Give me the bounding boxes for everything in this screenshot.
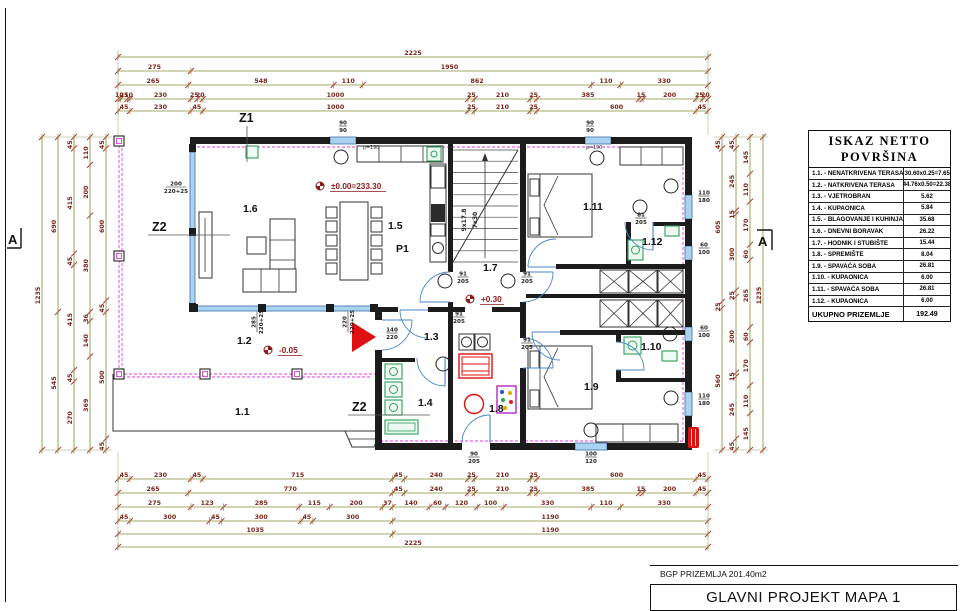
svg-text:100: 100 bbox=[698, 333, 710, 339]
svg-text:180: 180 bbox=[698, 401, 710, 407]
svg-text:200: 200 bbox=[170, 182, 182, 188]
dim-label: 210 bbox=[496, 92, 510, 99]
room-label: 1.10 bbox=[641, 341, 662, 353]
dim-label: 265 bbox=[743, 289, 750, 302]
dim-label: 15 bbox=[637, 486, 646, 493]
table-row: 1.11. - SPAVAĆA SOBA26.81 bbox=[809, 284, 950, 296]
table-row: 1.12. - KUPAONICA6.00 bbox=[809, 296, 950, 308]
room-area-cell: 26.81 bbox=[903, 261, 950, 272]
dim-label: 25 bbox=[529, 486, 538, 493]
svg-text:90: 90 bbox=[586, 121, 594, 127]
area-table-title: ISKAZ NETTO POVRŠINA bbox=[809, 131, 950, 168]
svg-text:205: 205 bbox=[521, 345, 533, 351]
dim-label: 690 bbox=[51, 219, 58, 233]
dim-label: 605 bbox=[715, 220, 722, 233]
opening-size-label: 110180 bbox=[698, 394, 710, 408]
dim-label: 200 bbox=[663, 486, 677, 493]
room-name-cell: 1.3. - VJETROBRAN bbox=[809, 193, 903, 200]
area-table-rows: 1.1. - NENATKRIVENA TERASA30.60x0.25=7.6… bbox=[809, 168, 950, 307]
dim-label: 230 bbox=[154, 472, 168, 479]
dim-label: 10 bbox=[124, 92, 133, 99]
room-area-cell: 5.62 bbox=[903, 191, 950, 202]
dim-label: 1950 bbox=[441, 64, 459, 71]
room-area-cell: 26.22 bbox=[903, 226, 950, 237]
stair-note: 9x17.8 bbox=[461, 209, 468, 232]
dim-label: 300 bbox=[346, 514, 360, 521]
dim-label: 36 bbox=[83, 313, 90, 322]
dim-label: 1190 bbox=[541, 527, 559, 534]
dim-label: 110 bbox=[743, 394, 750, 408]
dim-label: 300 bbox=[163, 514, 177, 521]
table-row: 1.5. - BLAGOVANJE I KUHINJA35.68 bbox=[809, 215, 950, 227]
room-area-cell: 30.60x0.25=7.65 bbox=[903, 168, 950, 179]
dim-label: 45 bbox=[67, 257, 74, 266]
dim-label: 1235 bbox=[35, 287, 42, 305]
svg-text:91: 91 bbox=[459, 272, 467, 278]
dim-label: 1000 bbox=[327, 104, 345, 111]
room-area-cell: 6.00 bbox=[903, 273, 950, 284]
room-name-cell: 1.5. - BLAGOVANJE I KUHINJA bbox=[809, 216, 903, 223]
opening-size-label: 9090 bbox=[339, 121, 347, 135]
room-name-cell: 1.7. - HODNIK I STUBIŠTE bbox=[809, 240, 903, 247]
dim-label: 120 bbox=[455, 500, 469, 507]
svg-text:91: 91 bbox=[523, 338, 531, 344]
level-marker-label: -0.05 bbox=[279, 346, 298, 355]
stair-note: 7x30 bbox=[472, 212, 479, 228]
dim-label: 275 bbox=[148, 64, 161, 71]
room-name-cell: 1.1. - NENATKRIVENA TERASA bbox=[809, 170, 903, 177]
dim-label: 170 bbox=[743, 218, 750, 232]
room-name-cell: 1.8. - SPREMIŠTE bbox=[809, 251, 903, 258]
dim-label: 140 bbox=[83, 334, 90, 348]
opening-size-label: 100120 bbox=[585, 452, 597, 466]
staircase: 9x17.87x30 bbox=[453, 150, 518, 262]
room-name-cell: 1.2. - NATKRIVENA TERASA bbox=[809, 182, 903, 189]
dim-label: 1190 bbox=[541, 514, 559, 521]
dim-label: 60 bbox=[743, 332, 750, 341]
dim-label: 770 bbox=[284, 486, 298, 493]
svg-text:140: 140 bbox=[386, 328, 398, 334]
room-label: 1.1 bbox=[235, 406, 250, 418]
svg-text:180: 180 bbox=[698, 198, 710, 204]
opening-size-label: 91205 bbox=[521, 272, 533, 286]
svg-text:285: 285 bbox=[252, 316, 258, 328]
opening-size-label: 285220+25 bbox=[252, 310, 266, 334]
svg-text:205: 205 bbox=[468, 459, 480, 465]
table-row: 1.3. - VJETROBRAN5.62 bbox=[809, 191, 950, 203]
dim-label: 145 bbox=[743, 427, 750, 440]
dim-label: 385 bbox=[581, 486, 594, 493]
table-row: 1.10. - KUPAONICA6.00 bbox=[809, 273, 950, 285]
room-area-cell: 44.76x0.50=22.38 bbox=[903, 180, 950, 191]
room-label: 1.11 bbox=[583, 201, 603, 213]
dim-label: 123 bbox=[201, 500, 214, 507]
dim-label: 862 bbox=[470, 78, 483, 85]
svg-text:220+25: 220+25 bbox=[164, 189, 188, 195]
dim-label: 110 bbox=[743, 183, 750, 197]
dim-label: 25 bbox=[529, 472, 538, 479]
dim-label: 230 bbox=[154, 92, 168, 99]
dim-label: 25 bbox=[729, 291, 736, 300]
dim-label: 45 bbox=[193, 472, 202, 479]
table-row: 1.8. - SPREMIŠTE8.04 bbox=[809, 249, 950, 261]
dim-label: 45 bbox=[67, 140, 74, 149]
dim-label: 548 bbox=[254, 78, 267, 85]
dim-label: 265 bbox=[147, 78, 160, 85]
svg-text:81: 81 bbox=[637, 213, 645, 219]
svg-text:91: 91 bbox=[455, 312, 463, 318]
dim-label: 45 bbox=[67, 373, 74, 382]
dim-label: 200 bbox=[663, 92, 677, 99]
dim-label: 45 bbox=[729, 442, 736, 451]
dim-label: 500 bbox=[99, 370, 106, 384]
dim-label: 45 bbox=[211, 514, 220, 521]
room-label: 1.8 bbox=[489, 403, 504, 415]
area-table: ISKAZ NETTO POVRŠINA 1.1. - NENATKRIVENA… bbox=[808, 130, 951, 322]
svg-text:91: 91 bbox=[523, 272, 531, 278]
dim-label: 245 bbox=[729, 175, 736, 188]
room-label: 1.2 bbox=[237, 335, 252, 347]
dim-label: 45 bbox=[715, 140, 722, 149]
area-table-title-line1: ISKAZ NETTO bbox=[809, 134, 950, 150]
svg-text:205: 205 bbox=[453, 319, 465, 325]
dim-label: 110 bbox=[83, 146, 90, 160]
title-block-divider bbox=[650, 565, 958, 566]
table-row: 1.2. - NATKRIVENA TERASA44.76x0.50=22.38 bbox=[809, 180, 950, 192]
dim-label: 45 bbox=[698, 104, 707, 111]
room-area-cell: 15.44 bbox=[903, 238, 950, 249]
opening-size-label: 91205 bbox=[521, 338, 533, 352]
room-label: 1.4 bbox=[418, 397, 433, 409]
room-area-cell: 5.84 bbox=[903, 203, 950, 214]
room-label: 1.5 bbox=[388, 220, 403, 232]
dim-label: 25 bbox=[467, 486, 476, 493]
room-name-cell: 1.9. - SPAVAĆA SOBA bbox=[809, 263, 903, 270]
dim-label: 45 bbox=[698, 486, 707, 493]
dim-label: 15 bbox=[637, 92, 646, 99]
dim-label: 110 bbox=[599, 78, 613, 85]
dim-label: 45 bbox=[193, 104, 202, 111]
room-label: P1 bbox=[396, 243, 409, 255]
dim-label: 15 bbox=[729, 372, 736, 381]
svg-text:90: 90 bbox=[470, 452, 478, 458]
dim-label: 25 bbox=[467, 472, 476, 479]
dim-label: 369 bbox=[83, 399, 90, 412]
dim-label: 45 bbox=[99, 442, 106, 451]
dim-label: 25 bbox=[467, 104, 476, 111]
dim-label: 245 bbox=[729, 403, 736, 416]
bgp-area-label: BGP PRIZEMLJA 201.40m2 bbox=[660, 569, 767, 579]
dim-label: 115 bbox=[308, 500, 321, 507]
dim-label: 415 bbox=[67, 313, 74, 326]
dim-label: 1235 bbox=[756, 287, 763, 305]
table-row: 1.7. - HODNIK I STUBIŠTE15.44 bbox=[809, 238, 950, 250]
dim-label: 25 bbox=[467, 92, 476, 99]
dim-label: 170 bbox=[743, 359, 750, 373]
table-row: 1.1. - NENATKRIVENA TERASA30.60x0.25=7.6… bbox=[809, 168, 950, 180]
dim-label: 2225 bbox=[404, 540, 422, 547]
dim-label: 110 bbox=[599, 500, 613, 507]
dim-label: 45 bbox=[120, 104, 129, 111]
dim-label: 210 bbox=[496, 486, 510, 493]
svg-text:110: 110 bbox=[698, 191, 710, 197]
opening-size-label: 110180 bbox=[698, 191, 710, 205]
dim-label: 600 bbox=[610, 104, 624, 111]
dim-label: 240 bbox=[430, 472, 444, 479]
dim-label: 380 bbox=[83, 259, 90, 273]
dim-label: 100 bbox=[484, 500, 498, 507]
room-area-cell: 35.68 bbox=[903, 215, 950, 226]
dim-label: 200 bbox=[350, 500, 364, 507]
parapet-label: p=190 bbox=[363, 145, 379, 151]
opening-size-label: 9090 bbox=[586, 121, 594, 135]
dim-label: 415 bbox=[67, 196, 74, 209]
dim-label: 145 bbox=[743, 151, 750, 164]
svg-text:90: 90 bbox=[339, 128, 347, 134]
dim-label: 285 bbox=[255, 500, 268, 507]
level-marker-label: +0.30 bbox=[481, 295, 502, 304]
dim-label: 45 bbox=[99, 304, 106, 313]
opening-size-label: 81205 bbox=[635, 213, 647, 227]
table-row: 1.4. - KUPAONICA5.84 bbox=[809, 203, 950, 215]
dim-label: 2225 bbox=[404, 50, 422, 57]
total-value: 192.49 bbox=[903, 307, 950, 321]
dim-label: 60 bbox=[433, 500, 442, 507]
svg-text:220: 220 bbox=[343, 316, 349, 328]
dim-label: 545 bbox=[51, 376, 58, 389]
svg-text:110: 110 bbox=[698, 394, 710, 400]
dim-label: 1000 bbox=[327, 92, 345, 99]
room-area-cell: 6.00 bbox=[903, 296, 950, 307]
table-row: 1.6. - DNEVNI BORAVAK26.22 bbox=[809, 226, 950, 238]
dim-label: 330 bbox=[658, 78, 672, 85]
opening-size-label: 90205 bbox=[468, 452, 480, 466]
dim-label: 560 bbox=[715, 374, 722, 388]
svg-text:220+25: 220+25 bbox=[350, 310, 356, 334]
dim-label: 240 bbox=[430, 486, 444, 493]
dim-label: 200 bbox=[83, 185, 90, 199]
dim-label: 330 bbox=[541, 500, 555, 507]
dim-label: 25 bbox=[529, 92, 538, 99]
room-area-cell: 8.04 bbox=[903, 249, 950, 260]
dim-label: 25 bbox=[529, 104, 538, 111]
dim-label: 600 bbox=[610, 472, 624, 479]
opening-size-label: 140220 bbox=[386, 328, 398, 342]
opening-size-label: 60100 bbox=[698, 326, 710, 340]
dim-label: 300 bbox=[255, 514, 269, 521]
area-table-total-row: UKUPNO PRIZEMLJE 192.49 bbox=[809, 307, 950, 321]
dim-label: 270 bbox=[67, 411, 74, 425]
room-label: 1.6 bbox=[243, 203, 258, 215]
svg-text:205: 205 bbox=[521, 279, 533, 285]
room-name-cell: 1.4. - KUPAONICA bbox=[809, 205, 903, 212]
zone-label: Z2 bbox=[152, 220, 167, 234]
project-title: GLAVNI PROJEKT MAPA 1 bbox=[650, 584, 957, 611]
dim-label: 45 bbox=[303, 514, 312, 521]
dim-label: 45 bbox=[99, 140, 106, 149]
dim-label: 210 bbox=[496, 104, 510, 111]
drawing-sheet: 2225275195026554811086211033010251023025… bbox=[0, 0, 960, 611]
dim-label: 140 bbox=[404, 500, 418, 507]
svg-text:120: 120 bbox=[585, 459, 597, 465]
room-name-cell: 1.11. - SPAVAĆA SOBA bbox=[809, 286, 903, 293]
dim-label: 715 bbox=[291, 472, 304, 479]
dim-label: 230 bbox=[154, 104, 168, 111]
opening-size-label: 220220+25 bbox=[343, 310, 357, 334]
dim-label: 1035 bbox=[246, 527, 264, 534]
room-name-cell: 1.6. - DNEVNI BORAVAK bbox=[809, 228, 903, 235]
dim-label: 45 bbox=[120, 514, 129, 521]
opening-size-label: 200220+25 bbox=[164, 182, 188, 196]
dim-label: 600 bbox=[99, 219, 106, 233]
svg-text:100: 100 bbox=[698, 250, 710, 256]
section-marker-left: A bbox=[8, 232, 18, 247]
opening-size-label: 91205 bbox=[453, 312, 465, 326]
dim-label: 330 bbox=[658, 500, 672, 507]
room-label: 1.12 bbox=[642, 236, 663, 248]
dim-label: 45 bbox=[729, 140, 736, 149]
svg-text:60: 60 bbox=[700, 243, 708, 249]
room-name-cell: 1.12. - KUPAONICA bbox=[809, 298, 903, 305]
dim-label: 20 bbox=[196, 92, 205, 99]
dim-label: 300 bbox=[729, 247, 736, 261]
dim-label: 300 bbox=[729, 329, 736, 343]
dim-label: 25 bbox=[715, 303, 722, 312]
svg-text:90: 90 bbox=[586, 128, 594, 134]
room-label: 1.9 bbox=[584, 381, 599, 393]
zone-label: Z1 bbox=[239, 111, 254, 125]
area-table-title-line2: POVRŠINA bbox=[809, 150, 950, 166]
dim-label: 45 bbox=[120, 472, 129, 479]
svg-text:220+25: 220+25 bbox=[259, 310, 265, 334]
dim-label: 265 bbox=[147, 486, 160, 493]
dim-label: 110 bbox=[342, 78, 356, 85]
sheet-frame-line bbox=[5, 8, 6, 602]
dim-label: 20 bbox=[701, 92, 710, 99]
total-label: UKUPNO PRIZEMLJE bbox=[809, 310, 903, 319]
parapet-label: p=190 bbox=[586, 145, 602, 151]
dim-label: 60 bbox=[743, 249, 750, 258]
dim-label: 15 bbox=[729, 210, 736, 219]
dim-label: 385 bbox=[581, 92, 594, 99]
room-name-cell: 1.10. - KUPAONICA bbox=[809, 274, 903, 281]
svg-text:220: 220 bbox=[386, 335, 398, 341]
opening-size-label: 60100 bbox=[698, 243, 710, 257]
room-label: 1.7 bbox=[483, 262, 498, 274]
dim-label: 275 bbox=[148, 500, 161, 507]
dim-label: 45 bbox=[394, 472, 403, 479]
svg-text:100: 100 bbox=[585, 452, 597, 458]
opening-size-label: 91205 bbox=[457, 272, 469, 286]
dim-label: 45 bbox=[698, 472, 707, 479]
svg-text:60: 60 bbox=[700, 326, 708, 332]
level-marker-label: ±0.00=233.30 bbox=[331, 182, 382, 191]
svg-text:205: 205 bbox=[635, 220, 647, 226]
dim-label: 210 bbox=[496, 472, 510, 479]
svg-text:90: 90 bbox=[339, 121, 347, 127]
room-area-cell: 26.81 bbox=[903, 284, 950, 295]
section-marker-right: A bbox=[758, 234, 768, 249]
dim-label: 37 bbox=[383, 500, 392, 507]
table-row: 1.9. - SPAVAĆA SOBA26.81 bbox=[809, 261, 950, 273]
room-label: 1.3 bbox=[424, 331, 439, 343]
zone-label: Z2 bbox=[352, 400, 367, 414]
dim-label: 45 bbox=[394, 486, 403, 493]
svg-text:205: 205 bbox=[457, 279, 469, 285]
